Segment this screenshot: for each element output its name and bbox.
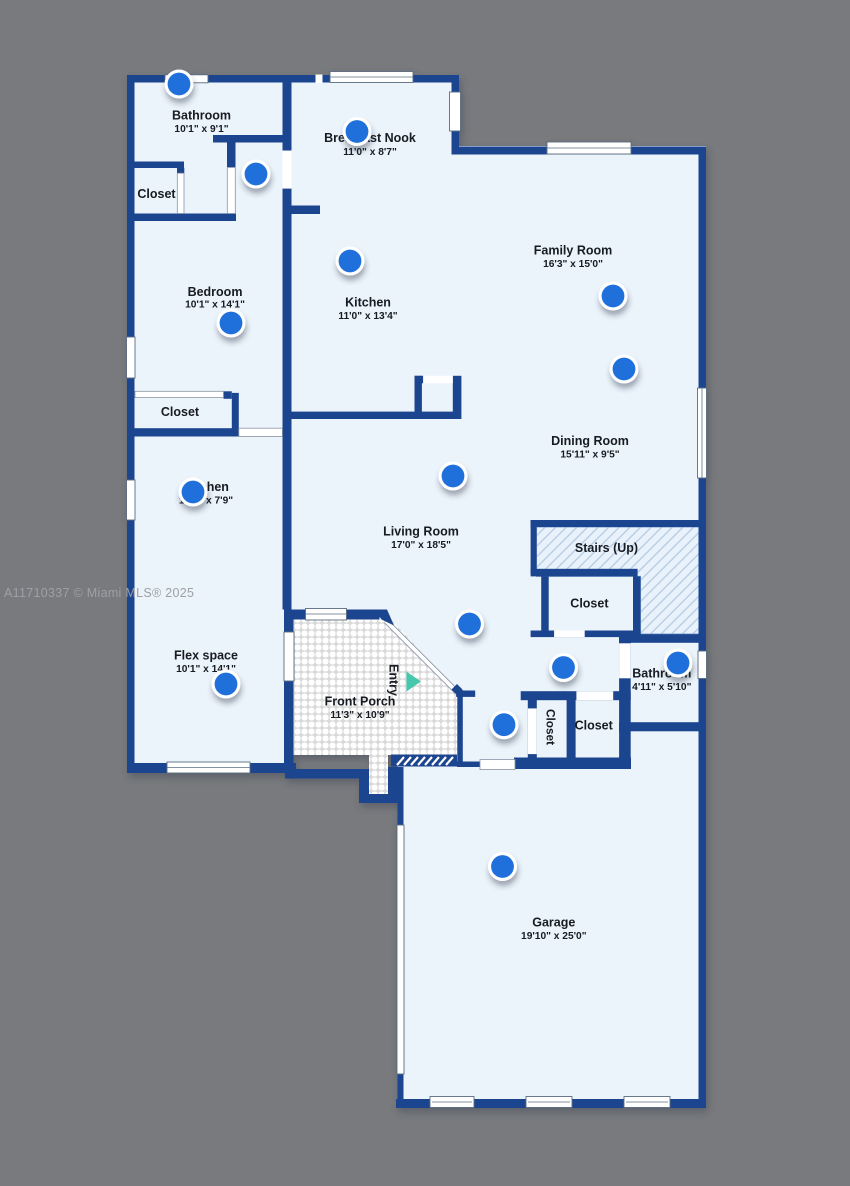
svg-text:15'11" x 9'5": 15'11" x 9'5" <box>560 449 619 460</box>
svg-text:Closet: Closet <box>161 405 200 419</box>
svg-text:19'10" x 25'0": 19'10" x 25'0" <box>521 931 587 942</box>
svg-text:Entry: Entry <box>387 664 401 696</box>
svg-text:Bedroom: Bedroom <box>188 285 243 299</box>
svg-text:Garage: Garage <box>532 915 575 929</box>
svg-text:Family Room: Family Room <box>534 243 613 257</box>
svg-text:10'1" x 9'1": 10'1" x 9'1" <box>174 124 228 135</box>
svg-text:A11710337 © Miami MLS® 2025: A11710337 © Miami MLS® 2025 <box>4 586 194 600</box>
svg-text:4'11" x 5'10": 4'11" x 5'10" <box>632 682 691 693</box>
svg-text:Flex space: Flex space <box>174 648 238 662</box>
svg-text:Kitchen: Kitchen <box>345 296 391 310</box>
svg-text:11'0" x 8'7": 11'0" x 8'7" <box>343 147 397 158</box>
svg-text:Bathroom: Bathroom <box>172 109 231 123</box>
svg-text:10'1" x 14'1": 10'1" x 14'1" <box>185 300 245 311</box>
svg-text:17'0" x 18'5": 17'0" x 18'5" <box>391 540 451 551</box>
svg-text:Closet: Closet <box>575 718 614 732</box>
svg-text:11'3" x 10'9": 11'3" x 10'9" <box>330 710 389 721</box>
svg-text:Front Porch: Front Porch <box>325 694 396 708</box>
svg-text:Stairs (Up): Stairs (Up) <box>575 541 638 555</box>
svg-text:Closet: Closet <box>543 709 557 745</box>
svg-text:16'3" x 15'0": 16'3" x 15'0" <box>543 259 603 270</box>
svg-text:Dining Room: Dining Room <box>551 434 629 448</box>
svg-text:11'0" x 13'4": 11'0" x 13'4" <box>338 311 397 322</box>
svg-text:Living Room: Living Room <box>383 524 459 538</box>
svg-text:Closet: Closet <box>137 187 176 201</box>
svg-text:Closet: Closet <box>570 596 609 610</box>
